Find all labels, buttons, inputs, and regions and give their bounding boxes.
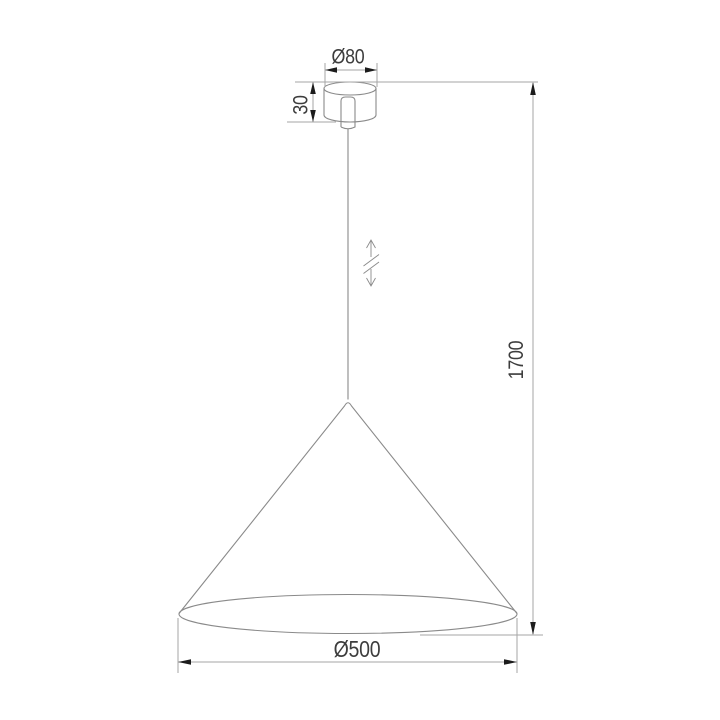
dim-label-canopy-height: 30 bbox=[289, 95, 313, 115]
dim-overall-height: 1700 bbox=[295, 82, 543, 635]
dim-arrow-up bbox=[530, 82, 536, 95]
dim-arrow-left bbox=[178, 659, 191, 665]
adjustable-height-icon bbox=[364, 240, 380, 286]
dim-label-overall-height: 1700 bbox=[505, 340, 529, 379]
dim-label-canopy-diameter: Ø80 bbox=[332, 45, 365, 69]
dim-arrow-down bbox=[530, 622, 536, 635]
dim-canopy-height: 30 bbox=[287, 82, 336, 122]
dim-arrow-right bbox=[365, 67, 377, 73]
dim-label-shade-diameter: Ø500 bbox=[334, 637, 381, 663]
dim-canopy-diameter: Ø80 bbox=[325, 45, 377, 87]
cord-grip bbox=[341, 97, 355, 129]
canopy-top-rim bbox=[324, 82, 376, 95]
cone-sides bbox=[179, 403, 517, 614]
lamp-shade-cone bbox=[179, 403, 517, 634]
shade-bottom-rim bbox=[179, 595, 517, 634]
technical-drawing-canvas: Ø80 30 1700 Ø500 bbox=[0, 0, 720, 720]
pendant-lamp-drawing: Ø80 30 1700 Ø500 bbox=[0, 0, 720, 720]
canopy-bottom-rim bbox=[324, 115, 376, 122]
dim-arrow-up bbox=[310, 82, 316, 94]
dim-shade-diameter: Ø500 bbox=[178, 618, 517, 673]
dim-arrow-right bbox=[504, 659, 517, 665]
